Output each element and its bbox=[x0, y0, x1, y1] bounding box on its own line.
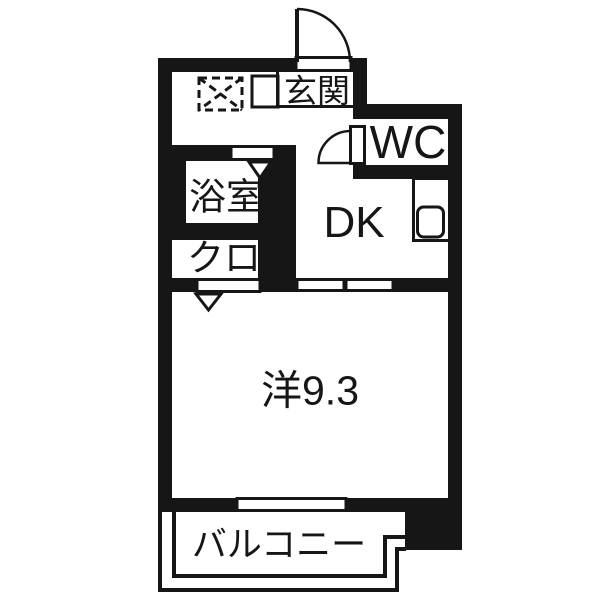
entrance-door-arc bbox=[297, 9, 350, 62]
shoe-cabinet-square bbox=[252, 76, 278, 107]
wall-bottom-right-block bbox=[405, 498, 462, 550]
room-label-western-room: 洋9.3 bbox=[261, 371, 359, 412]
sliding-door-panel-right bbox=[346, 280, 393, 291]
entrance-opening bbox=[296, 58, 351, 71]
room-entry-triangle bbox=[196, 294, 221, 310]
room-label-genkan: 玄関 bbox=[284, 75, 350, 108]
kitchen-sink bbox=[418, 207, 444, 237]
bathroom-door-opening bbox=[231, 147, 274, 160]
sliding-door-panel-left bbox=[297, 280, 344, 291]
room-label-dk: DK bbox=[323, 201, 384, 245]
wc-door-arc bbox=[319, 131, 351, 163]
closet-opening bbox=[197, 280, 260, 292]
room-label-bathroom: 浴室 bbox=[189, 179, 263, 216]
room-label-balcony: バルコニー bbox=[192, 528, 366, 563]
floor-plan: 玄関 WC 浴室 クロ DK 洋9.3 バルコニー bbox=[0, 0, 600, 600]
wc-door-leaf bbox=[351, 127, 365, 164]
appliance-dashed-box bbox=[199, 78, 242, 110]
room-label-wc: WC bbox=[370, 119, 447, 165]
window-opening bbox=[237, 499, 346, 511]
room-label-closet: クロ bbox=[187, 240, 261, 277]
